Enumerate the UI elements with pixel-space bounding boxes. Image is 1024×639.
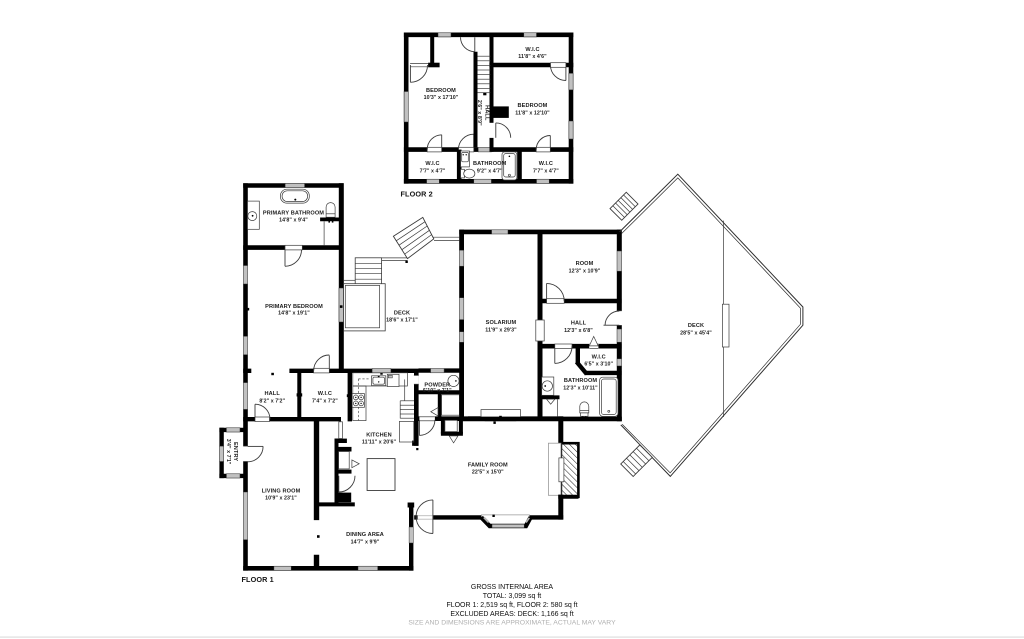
svg-text:HALL: HALL [483,105,489,121]
svg-text:W.I.C: W.I.C [592,354,606,360]
svg-text:HALL: HALL [571,321,587,327]
svg-text:2'6" x 8'9": 2'6" x 8'9" [476,100,482,126]
svg-text:7'7" x 4'7": 7'7" x 4'7" [533,168,559,174]
svg-text:12'3" x 10'11": 12'3" x 10'11" [563,385,598,391]
svg-text:FAMILY ROOM: FAMILY ROOM [468,462,508,468]
svg-text:6'5" x 3'10": 6'5" x 3'10" [584,362,613,368]
svg-text:W.I.C: W.I.C [525,47,539,53]
svg-text:8'2" x 7'2": 8'2" x 7'2" [259,399,285,405]
svg-text:14'8" x 9'4": 14'8" x 9'4" [279,218,308,224]
svg-text:28'5" x 45'4": 28'5" x 45'4" [680,330,712,336]
svg-text:DECK: DECK [394,310,410,316]
svg-text:10'9" x 23'1": 10'9" x 23'1" [265,496,297,502]
svg-text:HALL: HALL [265,391,281,397]
svg-text:FLOOR 1: 2,519 sq ft, FLOOR 2:: FLOOR 1: 2,519 sq ft, FLOOR 2: 580 sq ft [446,602,577,609]
svg-text:11'8" x 12'10": 11'8" x 12'10" [515,110,550,116]
svg-text:EXCLUDED AREAS: DECK: 1,166 sq: EXCLUDED AREAS: DECK: 1,166 sq ft [450,611,573,618]
svg-text:BATHROOM: BATHROOM [564,378,598,384]
svg-text:FLOOR 2: FLOOR 2 [401,190,433,199]
svg-text:9'2" x 4'7": 9'2" x 4'7" [477,168,503,174]
svg-text:12'3" x 6'8": 12'3" x 6'8" [564,328,593,334]
svg-text:18'6" x 17'1": 18'6" x 17'1" [386,318,418,324]
svg-text:W.I.C: W.I.C [425,161,439,167]
svg-text:PRIMARY BEDROOM: PRIMARY BEDROOM [265,304,323,310]
svg-text:GROSS INTERNAL AREA: GROSS INTERNAL AREA [471,584,554,591]
svg-text:BATHROOM: BATHROOM [473,161,507,167]
svg-text:FLOOR 1: FLOOR 1 [242,575,274,584]
svg-text:ROOM: ROOM [576,261,594,267]
svg-text:11'9" x 29'3": 11'9" x 29'3" [485,328,517,334]
svg-text:BEDROOM: BEDROOM [426,88,456,94]
svg-text:6'10" x 7'1": 6'10" x 7'1" [423,388,452,394]
svg-text:3'4" x 7'1": 3'4" x 7'1" [225,439,231,465]
svg-text:DECK: DECK [688,323,704,329]
svg-text:KITCHEN: KITCHEN [366,432,392,438]
svg-text:14'7" x 9'9": 14'7" x 9'9" [351,540,380,546]
svg-text:11'11" x 20'6": 11'11" x 20'6" [362,440,397,446]
svg-text:W.I.C: W.I.C [318,391,332,397]
svg-text:22'5" x 15'0": 22'5" x 15'0" [472,470,504,476]
svg-text:SIZE AND DIMENSIONS ARE APPROX: SIZE AND DIMENSIONS ARE APPROXIMATE, ACT… [408,620,616,627]
svg-text:SOLARIUM: SOLARIUM [486,320,517,326]
svg-text:LIVING ROOM: LIVING ROOM [262,488,301,494]
svg-text:TOTAL: 3,099 sq ft: TOTAL: 3,099 sq ft [483,593,542,600]
svg-text:PRIMARY BATHROOM: PRIMARY BATHROOM [263,211,324,217]
svg-text:12'3" x 10'9": 12'3" x 10'9" [569,268,601,274]
svg-text:BEDROOM: BEDROOM [518,103,548,109]
svg-text:7'7" x 4'7": 7'7" x 4'7" [420,168,446,174]
svg-text:DINING AREA: DINING AREA [346,532,384,538]
svg-text:14'8" x 19'1": 14'8" x 19'1" [278,311,310,317]
svg-text:11'8" x 4'6": 11'8" x 4'6" [518,54,547,60]
svg-text:ENTRY: ENTRY [232,442,238,461]
svg-text:10'3" x 17'10": 10'3" x 17'10" [424,95,459,101]
svg-text:W.I.C: W.I.C [539,161,553,167]
svg-text:7'4" x 7'2": 7'4" x 7'2" [312,399,338,405]
